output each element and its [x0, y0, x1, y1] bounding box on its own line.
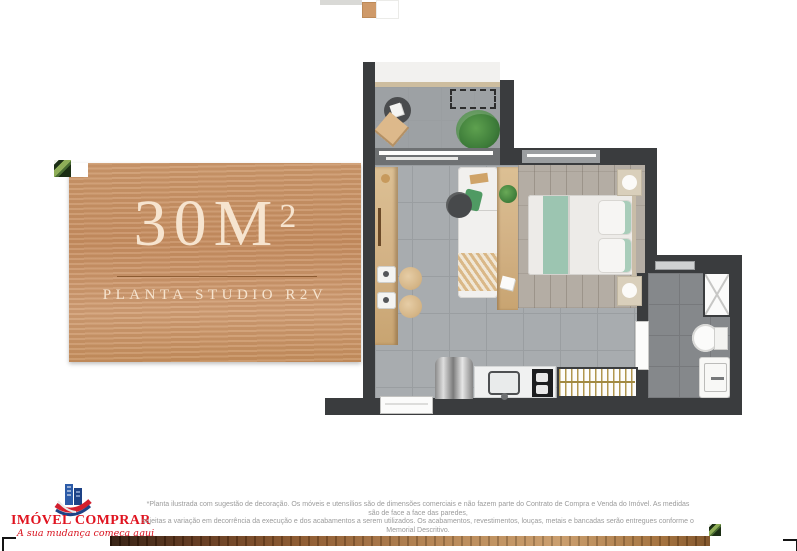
nightstand-bottom-lamp: [622, 283, 637, 298]
disclaimer-line-2: sujeitas a variação em decorrência da ex…: [140, 518, 696, 535]
wall-left: [363, 62, 375, 402]
counter-handle: [378, 208, 381, 246]
kitchen-counter-left: [375, 167, 398, 345]
bed-headboard: [632, 194, 636, 276]
top-gray-strip: [320, 0, 362, 5]
wall-balcony-right: [500, 80, 514, 168]
towel-rail: [655, 261, 695, 270]
bottom-wood-bar: [110, 536, 710, 546]
coffee-table: [446, 192, 472, 218]
crop-corner-left: [2, 537, 16, 551]
bed-green-runner: [543, 196, 568, 274]
leaf-icon: [54, 160, 71, 177]
shower-x-glass: [705, 274, 729, 315]
logo-name: IMÓVEL COMPRAR: [11, 513, 141, 529]
imovel-comprar-logo-icon: [52, 483, 94, 517]
wardrobe-rail: [560, 381, 635, 383]
balcony-plant: [456, 110, 500, 150]
bar-stool-2: [399, 295, 422, 318]
counter-bowl: [381, 174, 390, 183]
crop-corner-right: [783, 539, 797, 551]
superscript-2: 2: [279, 198, 296, 235]
bathroom-faucet: [711, 377, 724, 380]
ac-dashed-outline: [450, 89, 496, 109]
sink-knob-2: [383, 297, 389, 303]
top-outline-box: [376, 0, 399, 19]
promo-panel: 30M2 PLANTA STUDIO R2V: [69, 163, 361, 362]
disclaimer-text: *Planta ilustrada com sugestão de decora…: [140, 501, 696, 535]
leaf-icon-small: [709, 524, 721, 536]
cooktop-burner-2: [536, 385, 548, 394]
area-title: 30M2: [69, 191, 361, 257]
top-wood-swatch: [362, 2, 377, 18]
wood-grain: [110, 536, 710, 546]
panel-divider-line: [117, 276, 317, 277]
console-plant: [499, 185, 517, 203]
toilet-tank: [714, 327, 728, 350]
panel-subtitle: PLANTA STUDIO R2V: [69, 287, 361, 304]
wall-bathroom-right: [730, 255, 742, 415]
flyer-page: 30M2 PLANTA STUDIO R2V: [0, 0, 797, 551]
nightstand-top-lamp: [622, 175, 637, 190]
panel-corner-notch: [69, 163, 88, 177]
sofa-blanket: [458, 253, 498, 291]
fridge: [435, 357, 473, 399]
kitchen-faucet: [501, 393, 508, 400]
sink-knob-1: [383, 271, 389, 277]
bed-sheet-fold: [568, 196, 570, 274]
balcony-sliding-door-track: [386, 157, 458, 160]
entrance-door: [380, 396, 433, 414]
bar-stool-1: [399, 267, 422, 290]
disclaimer-line-1: *Planta ilustrada com sugestão de decora…: [140, 501, 696, 518]
bed-pillow-1: [598, 200, 632, 235]
bathroom-door: [635, 321, 649, 370]
entrance-door-line: [385, 403, 428, 405]
bed-pillow-2: [598, 238, 632, 273]
balcony-sill: [375, 62, 500, 82]
shower-box: [703, 272, 731, 317]
balcony-sliding-door: [379, 151, 493, 155]
cooktop-burner-1: [536, 373, 548, 382]
bedroom-window-glass: [527, 154, 596, 157]
kitchen-sink: [488, 371, 520, 395]
